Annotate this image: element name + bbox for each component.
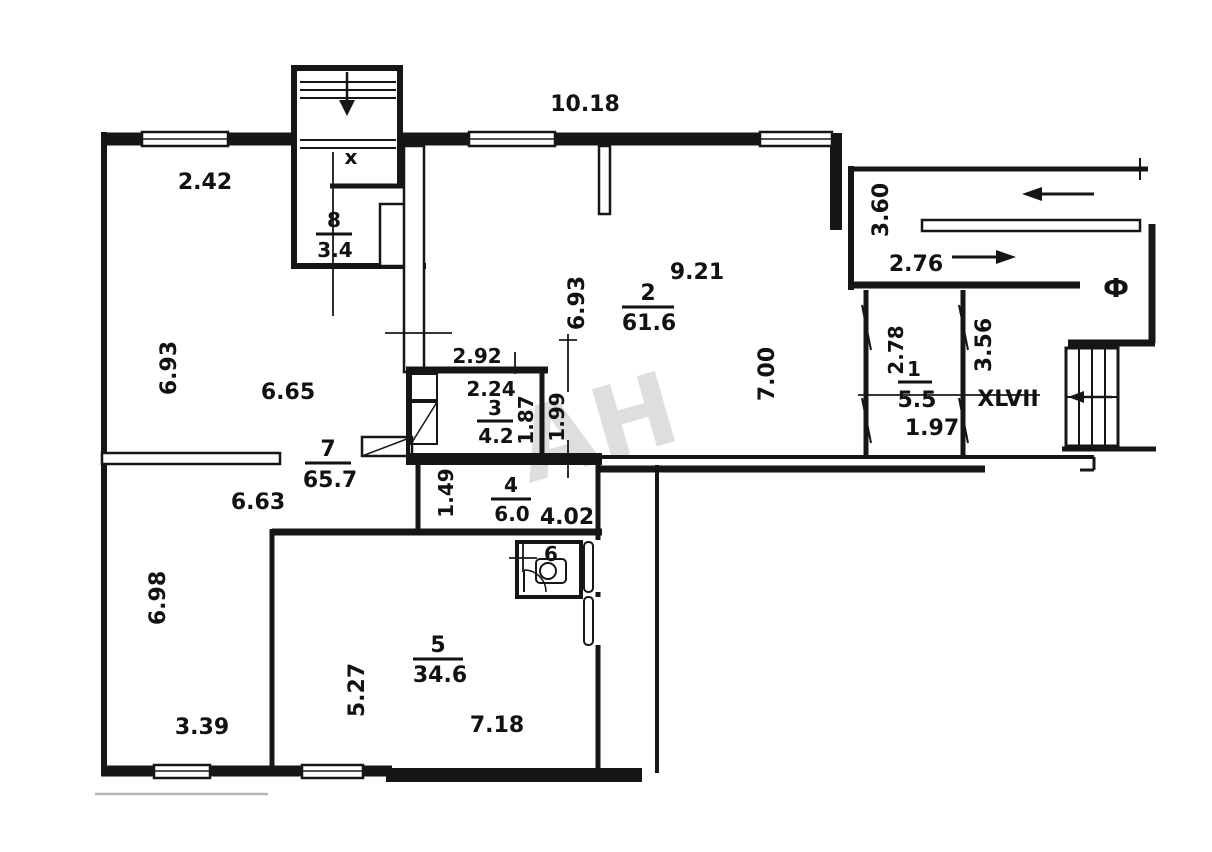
room4-area: 6.0 [494,502,529,526]
dim-room2-left-height: 6.93 [565,276,590,330]
room5-area: 34.6 [413,663,467,688]
dim-room2-top: 9.21 [670,260,724,285]
dim-room3-height: 1.87 [514,395,538,444]
dim-left-height: 6.93 [157,341,182,395]
room5-doors [584,542,593,645]
dim-room2-right-height: 7.00 [755,347,780,401]
room3-number: 3 [488,396,502,420]
dim-room1-height: 2.78 [884,325,908,374]
dim-room4-height: 1.49 [434,468,458,517]
room1-area: 5.5 [898,388,937,413]
dim-lower-left-bottom: 3.39 [175,715,229,740]
direction-arrow-left-icon [1022,187,1094,201]
room4-number: 4 [504,473,518,497]
room3-area: 4.2 [478,424,513,448]
room5-number: 5 [430,633,445,658]
door-leaf [584,542,593,592]
dim-room4-width: 4.02 [540,505,594,530]
room2-stub-wall [599,146,610,214]
dim-passage-width: 1.99 [545,392,569,441]
window-room5-bottom [302,765,363,778]
direction-arrow-right-icon [952,250,1016,264]
door-leaf [584,597,593,645]
dim-lower-left-height: 6.98 [146,571,171,625]
door-arc [524,570,546,592]
window-room7-bottom [154,765,210,778]
room1-number: 1 [907,357,921,381]
window-room2-top-left [469,132,555,146]
room7-number: 7 [320,437,335,462]
dim-room5-width: 7.18 [470,713,524,738]
dim-room3-top: 2.92 [452,344,501,368]
window-room7-top [142,132,228,146]
dim-left-top-width: 2.42 [178,170,232,195]
room2-area: 61.6 [622,311,676,336]
stairs-down-arrow-icon [339,72,355,116]
room7-partition-wall [102,453,280,464]
window-room2-top-right [760,132,832,146]
unit-number: XLVII [977,387,1038,412]
elevator-mark: Ф [1103,274,1129,304]
staircase-right [1066,348,1118,446]
floor-plan-page: АН [0,0,1212,852]
room2-number: 2 [640,281,655,306]
dim-lower-left-width: 6.63 [231,490,285,515]
room7-area: 65.7 [303,468,357,493]
dim-corridor-mid: 2.76 [889,252,943,277]
dim-top-width: 10.18 [550,92,620,117]
dim-corridor-top: 3.60 [869,183,894,237]
room8-area: 3.4 [317,238,352,262]
floor-plan-canvas: АН [0,0,1212,852]
room8-number: 8 [327,208,341,232]
radiator-icon [362,437,412,456]
dim-room1-width: 1.97 [905,416,959,441]
room6-number: 6 [544,542,558,566]
dim-room5-height: 5.27 [345,663,370,717]
room5-walls [272,529,412,773]
vestibule-mark: x [345,145,358,169]
dim-hall-width: 6.65 [261,380,315,405]
dim-hall-right-height: 3.56 [972,318,997,372]
closet-cell [411,374,437,400]
